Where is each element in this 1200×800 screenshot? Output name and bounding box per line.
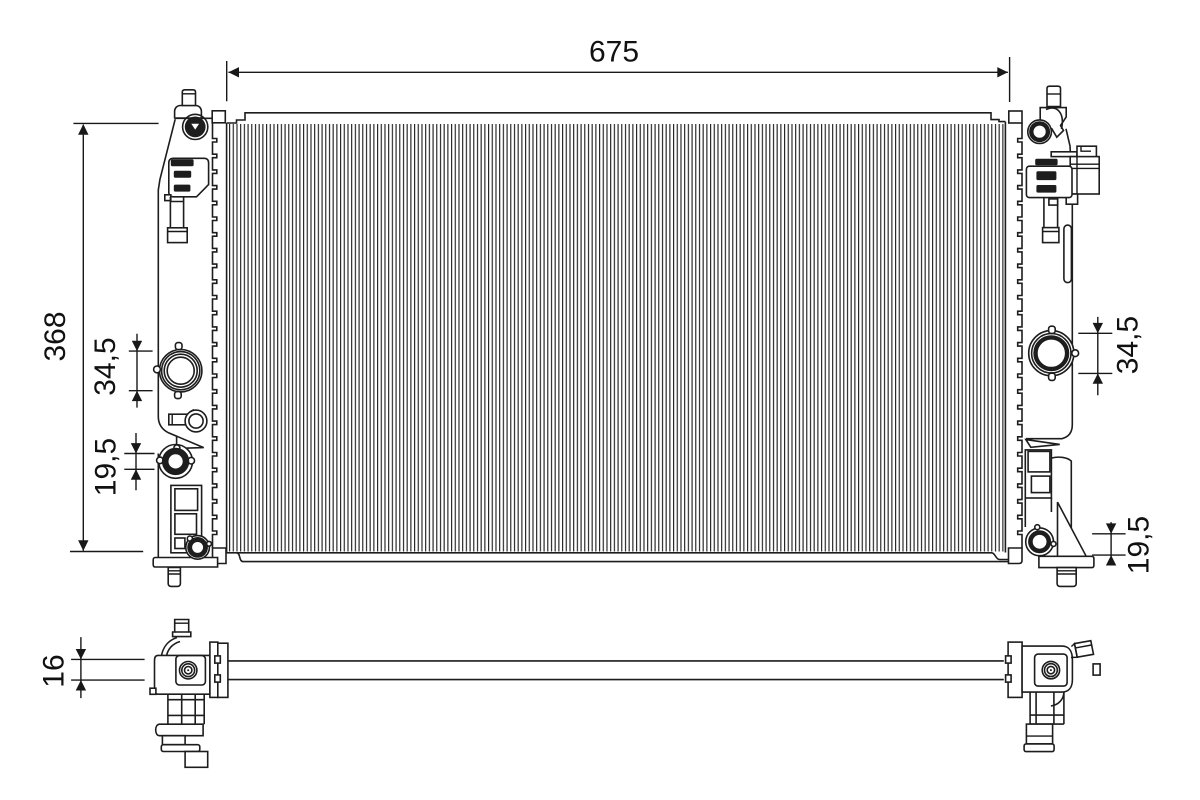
svg-text:34,5: 34,5 xyxy=(1111,316,1144,374)
svg-text:368: 368 xyxy=(39,311,72,361)
svg-text:19,5: 19,5 xyxy=(1122,516,1155,574)
svg-text:675: 675 xyxy=(589,36,639,69)
svg-text:19,5: 19,5 xyxy=(89,438,122,496)
svg-text:16: 16 xyxy=(37,654,70,687)
svg-text:34,5: 34,5 xyxy=(89,337,122,395)
